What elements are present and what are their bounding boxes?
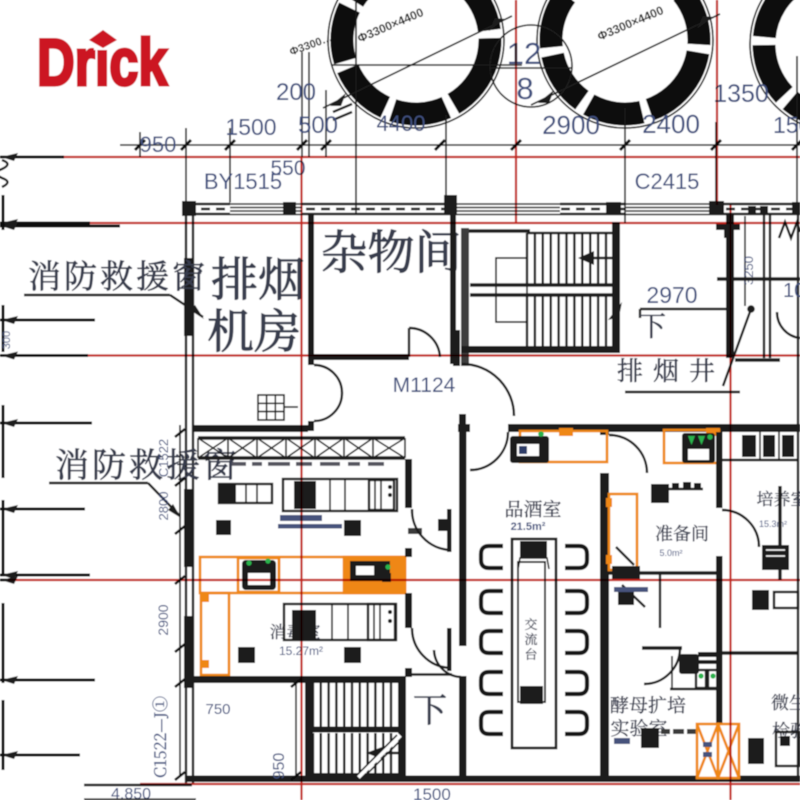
svg-text:C2415: C2415	[635, 169, 700, 194]
svg-text:200: 200	[276, 79, 316, 106]
svg-text:500: 500	[298, 112, 338, 139]
svg-text:1350: 1350	[713, 80, 769, 108]
svg-text:5.0m²: 5.0m²	[659, 548, 682, 558]
svg-text:2800: 2800	[156, 492, 171, 521]
svg-text:10: 10	[783, 280, 800, 302]
svg-text:950: 950	[271, 753, 288, 780]
svg-text:1500: 1500	[225, 114, 276, 140]
svg-text:4400: 4400	[377, 111, 426, 136]
svg-text:150: 150	[773, 112, 800, 138]
svg-text:M1124: M1124	[393, 374, 456, 397]
svg-text:4.850: 4.850	[111, 786, 151, 800]
svg-text:BY1515: BY1515	[204, 169, 282, 194]
svg-text:2970: 2970	[646, 282, 697, 308]
svg-text:300: 300	[1, 331, 13, 349]
svg-text:2400: 2400	[642, 109, 700, 139]
svg-text:750: 750	[205, 701, 230, 718]
svg-text:950: 950	[140, 132, 177, 157]
svg-text:2900: 2900	[542, 110, 600, 140]
svg-text:2900: 2900	[155, 604, 171, 635]
svg-text:1500: 1500	[413, 785, 451, 800]
svg-text:8: 8	[516, 71, 533, 106]
svg-text:C1522: C1522	[156, 439, 171, 477]
svg-text:15.3m²: 15.3m²	[759, 519, 787, 529]
svg-text:21.5m²: 21.5m²	[511, 521, 546, 533]
